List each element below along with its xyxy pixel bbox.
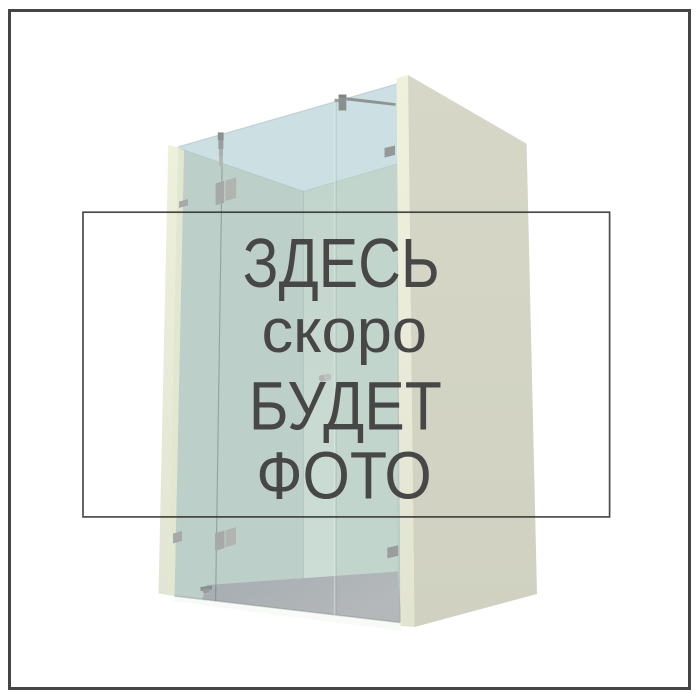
svg-text:БУДЕТ: БУДЕТ (249, 367, 442, 444)
svg-text:ЗДЕСЬ: ЗДЕСЬ (243, 224, 440, 302)
svg-text:скоро: скоро (262, 297, 428, 366)
svg-text:ФОТО: ФОТО (256, 439, 432, 514)
